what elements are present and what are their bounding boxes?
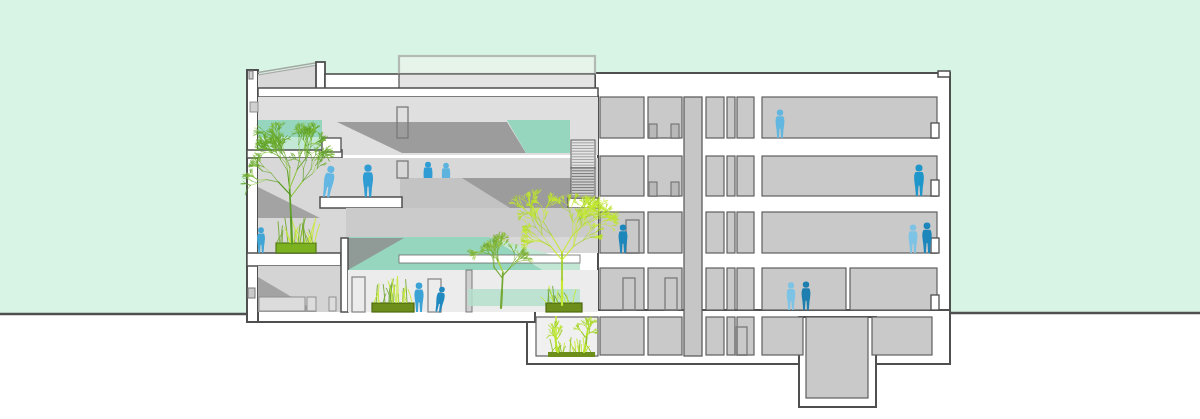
room-cell <box>727 97 735 138</box>
room-cell <box>727 212 735 253</box>
planter-basement <box>548 352 595 357</box>
door-panel-4 <box>671 182 679 196</box>
roof-band <box>399 74 595 89</box>
room-cell <box>706 268 724 310</box>
room-cell <box>600 97 644 138</box>
under-balcony-band <box>346 208 595 237</box>
facade-notch-f1 <box>931 295 939 310</box>
room-cell <box>762 156 937 196</box>
room-cell <box>850 268 937 310</box>
wall-recess-block <box>250 102 258 112</box>
architectural-section-canvas <box>0 0 1200 419</box>
facade-notch-f3 <box>931 180 939 196</box>
door-panel-3 <box>649 182 657 196</box>
planter-ground-right <box>546 303 582 312</box>
room-cell <box>727 317 735 355</box>
mid-wall <box>341 238 348 312</box>
door-panel-2 <box>671 124 679 138</box>
room-cell <box>762 317 803 355</box>
room-cell <box>600 268 644 310</box>
parapet-notch <box>249 71 253 79</box>
facade-notch-f4 <box>931 123 939 138</box>
stair-upper-flight <box>571 140 595 168</box>
canopy-slab-strip <box>399 255 580 263</box>
side-table <box>329 297 336 311</box>
room-cell <box>600 317 644 355</box>
room-cell <box>648 212 682 253</box>
left-wall-window <box>248 288 255 298</box>
room-cell <box>706 212 724 253</box>
room-cell <box>872 317 932 355</box>
room-cell <box>648 317 682 355</box>
section-drawing-svg <box>0 0 1200 419</box>
room-cell <box>762 97 937 138</box>
pit-interior <box>806 317 868 398</box>
room-cell <box>737 268 754 310</box>
left-roof-slab <box>258 88 598 97</box>
right-parapet <box>938 71 950 77</box>
mezzanine-slab <box>320 197 402 208</box>
room-cell <box>737 156 754 196</box>
room-cell <box>600 156 644 196</box>
room-cell <box>727 156 735 196</box>
planter-atrium <box>276 243 316 253</box>
elevator-shaft <box>684 97 702 356</box>
room-cell <box>737 212 754 253</box>
sofa-seat <box>259 297 305 311</box>
skylight-box <box>399 56 595 74</box>
door-panel-1 <box>649 124 657 138</box>
room-cell <box>737 317 754 355</box>
facade-notch-f2 <box>931 238 939 253</box>
room-cell <box>706 156 724 196</box>
planter-terrace-slab <box>247 253 341 266</box>
room-cell <box>737 97 754 138</box>
sofa-armrest <box>307 297 316 311</box>
room-cell <box>727 268 735 310</box>
planter-ground-left <box>372 303 414 312</box>
stair-lower-flight <box>571 168 595 198</box>
room-cell <box>706 317 724 355</box>
room-cell <box>706 97 724 138</box>
